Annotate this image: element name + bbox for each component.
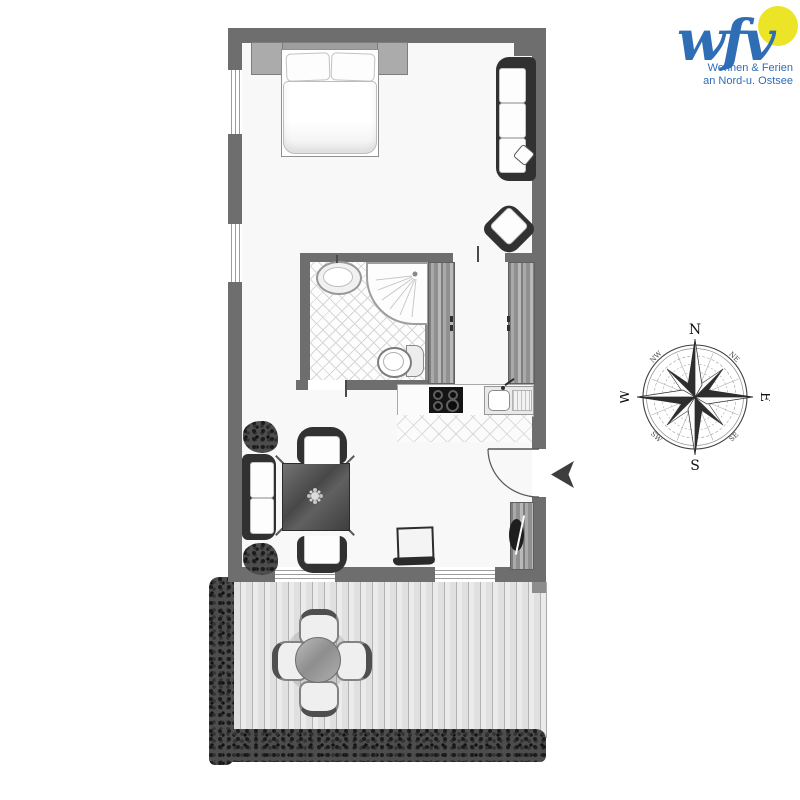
- sink-basin: [488, 390, 510, 411]
- armchair-upper: [297, 427, 347, 464]
- sofa-cushion: [250, 462, 274, 498]
- two-seat-sofa: [242, 454, 276, 540]
- compass-label-n: N: [689, 322, 701, 338]
- armchair-seat: [304, 536, 340, 564]
- side-chair-back: [393, 556, 435, 565]
- hall-wall-top: [505, 253, 532, 262]
- toilet-bowl-inner: [383, 352, 404, 371]
- terrace-chair-bottom: [299, 681, 339, 717]
- tv-sideboard: [510, 502, 534, 570]
- bathroom-door-mark: [345, 380, 347, 397]
- wardrobe-handle: [507, 325, 510, 331]
- wardrobe-right: [508, 262, 535, 384]
- washbasin: [316, 261, 362, 295]
- washbasin-bowl: [323, 267, 353, 287]
- sink-drainboard: [512, 390, 532, 411]
- hedge-bottom: [209, 729, 546, 762]
- brand-wordmark: wfv: [677, 13, 773, 69]
- pillow-right: [331, 52, 376, 82]
- window-left-upper: [228, 70, 242, 134]
- stove-burner: [433, 401, 443, 411]
- nightstand-right: [377, 42, 408, 75]
- wardrobe-handle: [450, 325, 453, 331]
- wall-corner-notch: [514, 43, 532, 56]
- wall-top: [228, 28, 546, 43]
- table-centerpiece: [311, 492, 319, 500]
- bathroom-wall-left: [300, 253, 310, 390]
- stove-burner: [446, 399, 459, 412]
- plant-lower: [243, 543, 278, 575]
- bathroom-wall-top: [300, 253, 453, 262]
- armchair-lower: [297, 536, 347, 573]
- compass-rose-icon: N S E W NE NW SE SW: [620, 322, 770, 472]
- floorplan-page: N S E W NE NW SE SW wfv Wohnen & Ferien …: [0, 0, 800, 800]
- shower-spray: [368, 264, 427, 323]
- compass-label-s: S: [690, 458, 700, 472]
- duvet: [283, 81, 377, 154]
- nightstand-left: [251, 42, 283, 75]
- brand-logo: wfv Wohnen & Ferien an Nord-u. Ostsee: [615, 5, 800, 95]
- terrace-window-right: [435, 567, 495, 582]
- armchair-seat: [304, 436, 340, 464]
- sofa-cushion: [250, 498, 274, 534]
- wardrobe-left: [428, 262, 455, 384]
- kitchen-floor-hatch: [397, 415, 532, 442]
- wardrobe-handle: [450, 316, 453, 322]
- sofa-cushion: [499, 68, 526, 103]
- dining-table: [282, 463, 350, 531]
- brand-tagline-line2: an Nord-u. Ostsee: [673, 75, 793, 88]
- entrance-door-swing: [480, 440, 550, 510]
- sofa-cushion: [499, 103, 526, 138]
- three-seat-sofa: [496, 57, 536, 181]
- plant-upper: [243, 421, 278, 453]
- compass-label-ne: NE: [727, 350, 741, 364]
- shower: [366, 262, 429, 325]
- compass-label-e: E: [757, 392, 770, 402]
- terrace-chair-right: [336, 641, 372, 681]
- compass-label-nw: NW: [648, 349, 664, 365]
- wardrobe-handle: [507, 316, 510, 322]
- toilet-bowl: [377, 347, 412, 378]
- wall-stub: [532, 582, 546, 593]
- entrance-arrow-icon: [551, 461, 574, 488]
- sink-faucet-base: [501, 386, 505, 390]
- kitchen-sink-unit: [484, 386, 534, 415]
- brand-tagline-line1: Wohnen & Ferien: [673, 62, 793, 75]
- terrace-table: [295, 637, 341, 683]
- compass-label-w: W: [620, 389, 633, 404]
- basin-faucet: [336, 255, 338, 263]
- compass-label-se: SE: [728, 431, 741, 444]
- bathroom-door-opening: [308, 380, 345, 390]
- stove-burner: [433, 390, 443, 400]
- window-left-lower: [228, 224, 242, 282]
- pillow-left: [286, 52, 331, 82]
- hall-door-mark: [477, 246, 479, 262]
